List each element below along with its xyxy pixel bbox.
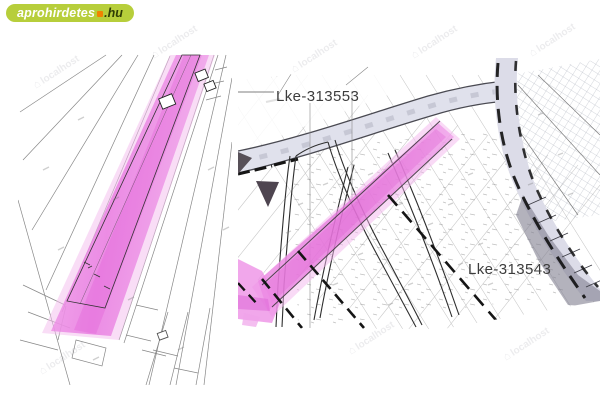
site-logo-tld: .hu — [104, 6, 123, 20]
logo-dot-icon — [97, 11, 103, 17]
zone-label-lower: Lke-313543 — [468, 261, 551, 278]
site-logo: aprohirdetes .hu — [6, 4, 134, 22]
right-map: Lke-313553 Lke-313543 — [238, 55, 600, 355]
site-logo-text: aprohirdetes — [17, 6, 95, 20]
watermark: ⌂localhost — [527, 21, 578, 60]
left-map-highlight-parcel — [42, 55, 215, 340]
left-map — [18, 50, 232, 385]
zone-label-upper: Lke-313553 — [276, 88, 359, 105]
listing-image: aprohirdetes .hu — [0, 0, 600, 400]
